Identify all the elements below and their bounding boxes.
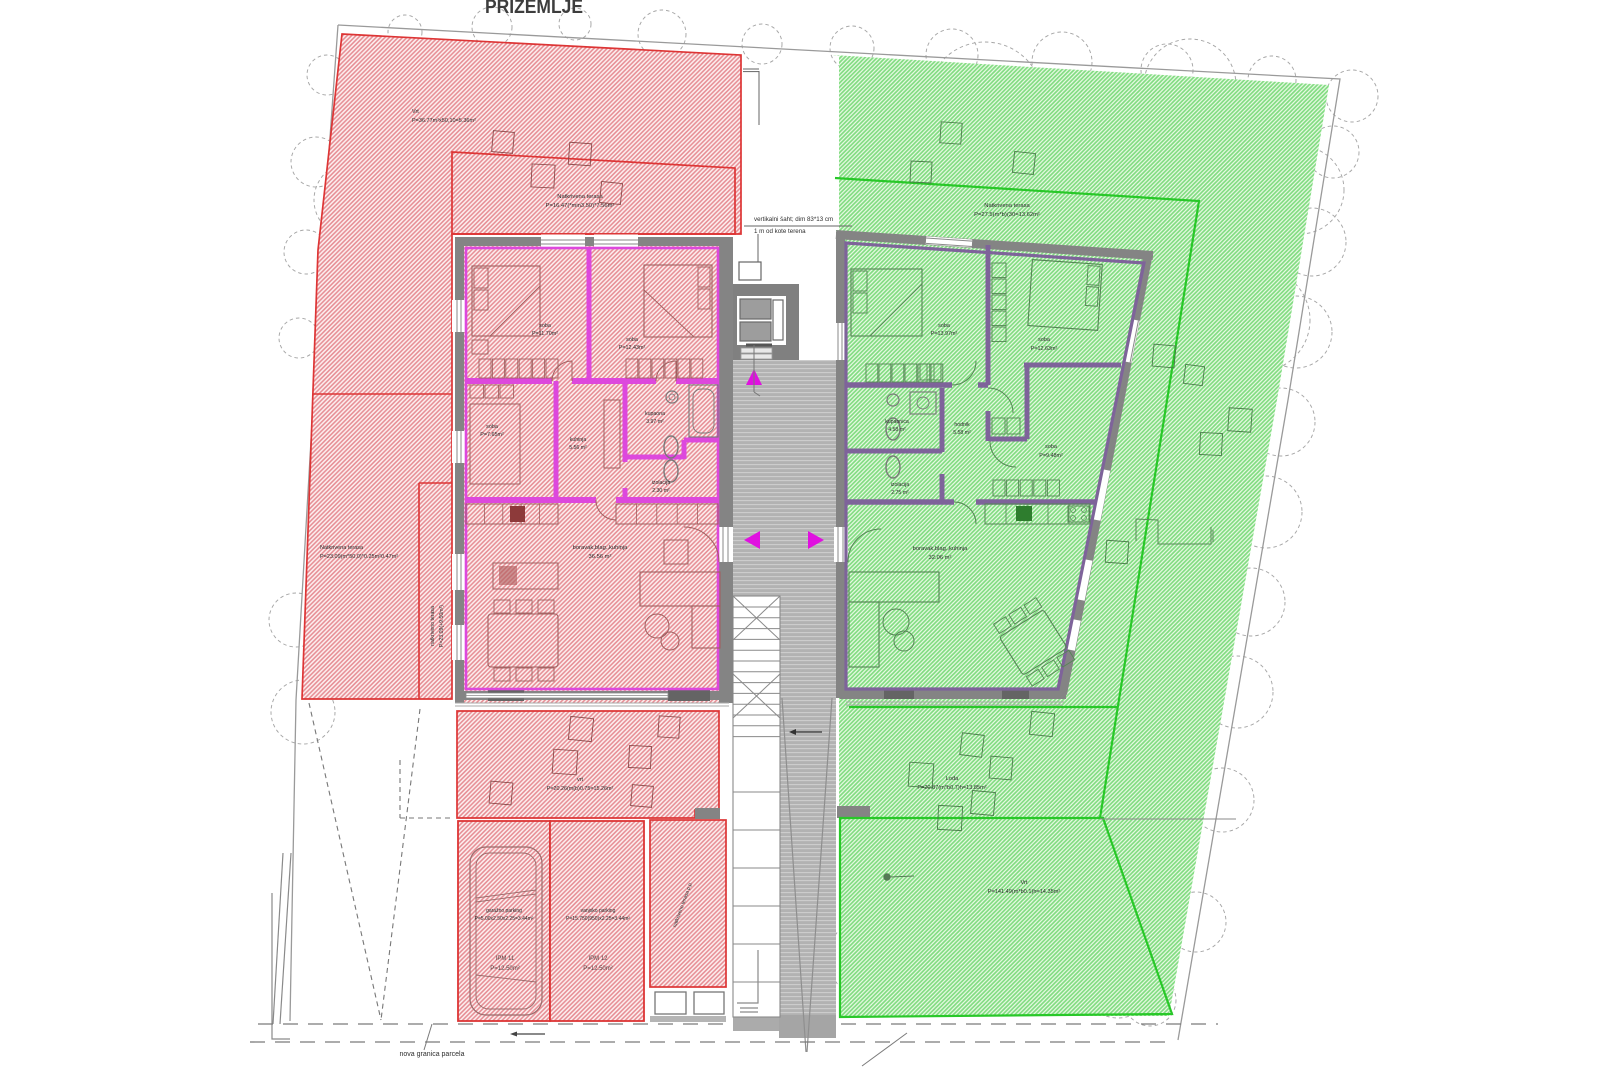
svg-text:P=20.26(m(b)0.75=15.26m²: P=20.26(m(b)0.75=15.26m² <box>547 786 614 792</box>
svg-text:soba: soba <box>539 323 551 329</box>
svg-text:kupaona: kupaona <box>645 411 665 417</box>
svg-text:P=12.50m²: P=12.50m² <box>490 966 520 972</box>
svg-text:P=9.48m²: P=9.48m² <box>1039 453 1063 459</box>
svg-text:IPM 11: IPM 11 <box>496 956 515 962</box>
svg-text:P=27.5(m*b)(30=13.62m²: P=27.5(m*b)(30=13.62m² <box>974 212 1040 218</box>
svg-text:Natkrivena terasa: Natkrivena terasa <box>557 194 603 200</box>
svg-text:soba: soba <box>1038 337 1050 343</box>
svg-text:3.97 m²: 3.97 m² <box>646 419 664 425</box>
svg-text:PRIZEMLJE: PRIZEMLJE <box>485 0 583 18</box>
svg-text:nova granica parcela: nova granica parcela <box>400 1051 465 1058</box>
svg-text:boravak,blag.,kuhinja: boravak,blag.,kuhinja <box>913 546 969 552</box>
svg-text:natkriveno terasa: natkriveno terasa <box>430 606 436 646</box>
svg-text:Natkrivena terasa: Natkrivena terasa <box>984 203 1030 209</box>
svg-text:soba: soba <box>626 337 638 343</box>
svg-text:Lođa: Lođa <box>946 776 959 782</box>
svg-text:2.75 m²: 2.75 m² <box>891 490 909 496</box>
svg-text:4.58 m²: 4.58 m² <box>888 427 906 433</box>
svg-text:P=12.50m²: P=12.50m² <box>583 966 613 972</box>
svg-text:32.06 m²: 32.06 m² <box>929 555 952 561</box>
svg-text:P=20.87(m*b0.7)h=13.85m²: P=20.87(m*b0.7)h=13.85m² <box>917 785 986 791</box>
svg-text:P=7.65m²: P=7.65m² <box>480 432 504 438</box>
svg-text:izolacija: izolacija <box>652 480 671 486</box>
svg-text:soba: soba <box>1045 444 1057 450</box>
svg-text:kuhinja: kuhinja <box>570 437 587 443</box>
svg-text:P=36.77m²x50,10=5.36m²: P=36.77m²x50,10=5.36m² <box>412 118 476 124</box>
svg-text:P=12.63m²: P=12.63m² <box>1031 346 1058 352</box>
svg-text:garažno parking: garažno parking <box>486 908 522 914</box>
svg-text:IPM 12: IPM 12 <box>588 956 608 962</box>
svg-text:Vrt: Vrt <box>1021 880 1028 886</box>
svg-text:36.56 m²: 36.56 m² <box>589 554 612 560</box>
svg-text:vrt: vrt <box>577 777 583 783</box>
svg-text:boravak,blag.,kuhinja: boravak,blag.,kuhinja <box>573 545 629 551</box>
svg-text:5.56 m²: 5.56 m² <box>569 445 587 451</box>
svg-text:P=12.43m²: P=12.43m² <box>619 345 646 351</box>
svg-text:kupaonica: kupaonica <box>885 419 909 425</box>
svg-text:P=23.09(+9.50m²): P=23.09(+9.50m²) <box>439 605 445 647</box>
svg-text:Vrt: Vrt <box>412 109 419 115</box>
svg-text:P=11.70m²: P=11.70m² <box>532 331 558 337</box>
svg-text:P=15.750(950)x2.25=3.44m²: P=15.750(950)x2.25=3.44m² <box>566 916 630 922</box>
svg-text:P=5.00x2.50x2.25=3.44m²: P=5.00x2.50x2.25=3.44m² <box>475 916 534 922</box>
svg-text:izolacija: izolacija <box>891 482 910 488</box>
svg-text:2.30 m²: 2.30 m² <box>652 488 670 494</box>
svg-text:P=23.09(m*50,0)*0.25m²0.47m²: P=23.09(m*50,0)*0.25m²0.47m² <box>320 554 398 560</box>
svg-text:vertikalni šaht; dim 83*13 cm: vertikalni šaht; dim 83*13 cm <box>754 216 833 223</box>
svg-text:P=141.49(m*b0.1)h=14.35m²: P=141.49(m*b0.1)h=14.35m² <box>988 889 1061 895</box>
svg-text:soba: soba <box>486 424 498 430</box>
svg-text:5.58 m²: 5.58 m² <box>953 430 971 436</box>
svg-text:hodnik: hodnik <box>954 422 970 428</box>
svg-text:P=16.47(*min3.50)*7.56m²: P=16.47(*min3.50)*7.56m² <box>546 203 615 209</box>
svg-text:vanjsko parking: vanjsko parking <box>581 908 616 914</box>
svg-text:soba: soba <box>938 323 950 329</box>
svg-text:P=13.97m²: P=13.97m² <box>931 331 958 337</box>
svg-text:1 m od kote terena: 1 m od kote terena <box>754 228 806 235</box>
svg-text:Natkrivena terasa: Natkrivena terasa <box>320 545 364 551</box>
